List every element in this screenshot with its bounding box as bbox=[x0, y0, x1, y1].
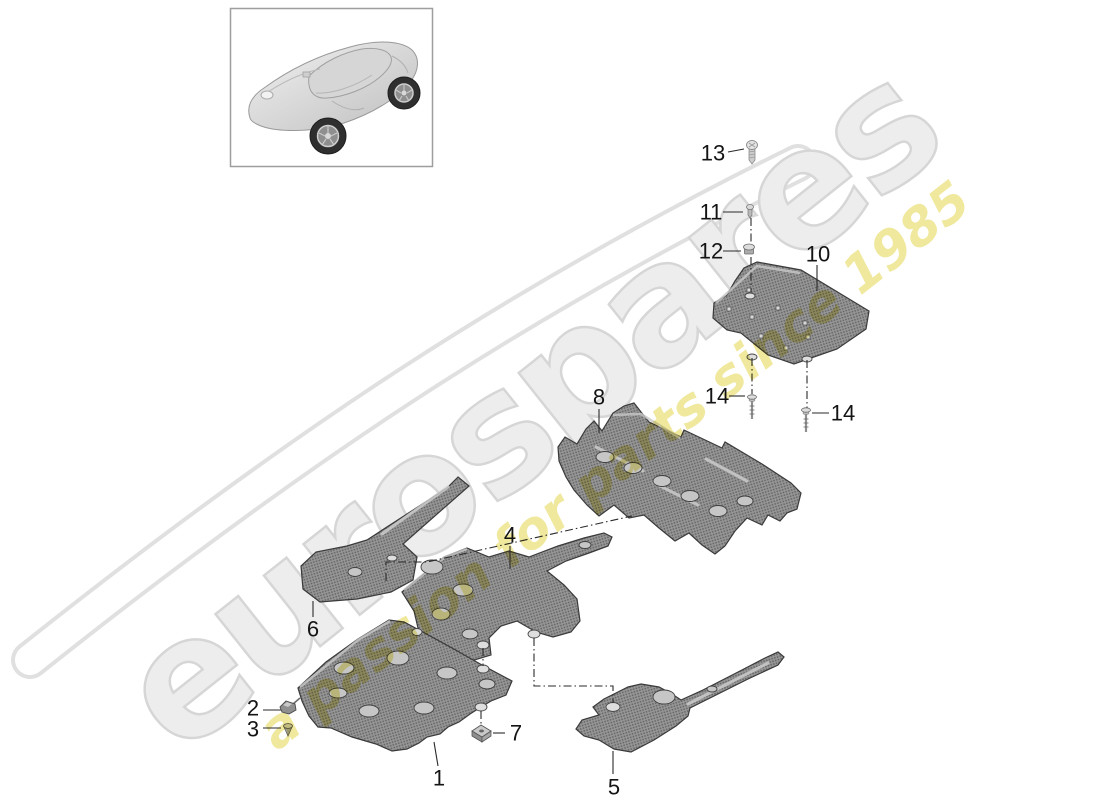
callout-10-label[interactable]: 10 bbox=[806, 242, 830, 267]
vehicle-thumbnail bbox=[231, 9, 433, 167]
nut-7-icon bbox=[472, 725, 491, 742]
callout-14-left-label[interactable]: 14 bbox=[705, 384, 729, 409]
side-mirror bbox=[303, 72, 310, 77]
parts-diagram-page: eurospares bbox=[0, 0, 1100, 800]
callout-8-label[interactable]: 8 bbox=[593, 385, 605, 410]
callout-4-label[interactable]: 4 bbox=[504, 523, 516, 548]
part-5-rail bbox=[576, 652, 784, 752]
leader-line-part4-part5 bbox=[534, 638, 613, 703]
callout-1-label[interactable]: 1 bbox=[433, 766, 445, 791]
headlight bbox=[261, 91, 273, 99]
callout-7-label[interactable]: 7 bbox=[510, 721, 522, 746]
parts-diagram-canvas: eurospares bbox=[0, 0, 1100, 800]
screw-14-right-icon bbox=[802, 408, 811, 432]
callout-6-label[interactable]: 6 bbox=[307, 617, 319, 642]
callout-3-label[interactable]: 3 bbox=[247, 717, 259, 742]
nut-12-icon bbox=[744, 244, 755, 254]
callout-12-label[interactable]: 12 bbox=[699, 239, 723, 264]
callout-14-right-label[interactable]: 14 bbox=[831, 401, 855, 426]
front-wheel bbox=[310, 118, 346, 154]
callout-13-label[interactable]: 13 bbox=[701, 141, 725, 166]
callout-1-leader bbox=[434, 742, 438, 766]
callout-5-label[interactable]: 5 bbox=[608, 775, 620, 800]
callout-11-label[interactable]: 11 bbox=[700, 200, 723, 225]
rear-wheel bbox=[388, 77, 420, 109]
